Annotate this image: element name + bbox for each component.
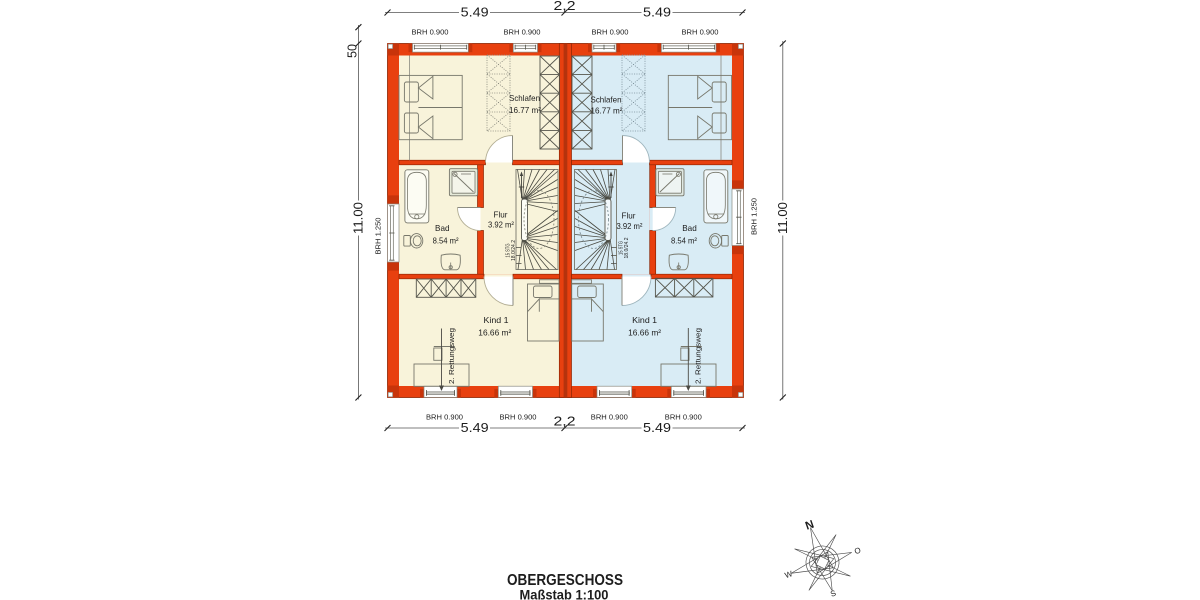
svg-text:Bad: Bad [682, 223, 697, 233]
svg-text:5.49: 5.49 [643, 6, 671, 20]
svg-text:BRH 0.900: BRH 0.900 [682, 28, 719, 37]
svg-text:Maßstab 1:100: Maßstab 1:100 [520, 588, 609, 600]
svg-text:BRH 0.900: BRH 0.900 [591, 413, 628, 422]
svg-text:5.49: 5.49 [461, 421, 489, 435]
svg-text:BRH 0.900: BRH 0.900 [665, 413, 702, 422]
svg-text:BRH 1.250: BRH 1.250 [750, 198, 759, 235]
svg-text:BRH 0.900: BRH 0.900 [426, 413, 463, 422]
svg-text:OBERGESCHOSS: OBERGESCHOSS [507, 572, 623, 589]
svg-text:Flur: Flur [494, 210, 508, 220]
svg-text:BRH 0.900: BRH 0.900 [412, 28, 449, 37]
svg-text:5.49: 5.49 [461, 6, 489, 20]
svg-text:8.54 m²: 8.54 m² [671, 236, 697, 246]
svg-text:16.77 m²: 16.77 m² [591, 106, 623, 116]
svg-text:16.77 m²: 16.77 m² [509, 105, 541, 115]
svg-text:11.00: 11.00 [352, 202, 366, 234]
svg-text:Schlafen: Schlafen [509, 93, 540, 103]
svg-text:2,2: 2,2 [554, 0, 576, 13]
svg-text:2,2: 2,2 [554, 415, 576, 429]
svg-text:Flur: Flur [622, 211, 636, 221]
svg-text:2. Rettungsweg: 2. Rettungsweg [449, 328, 456, 384]
svg-text:16.66 m²: 16.66 m² [478, 327, 511, 337]
svg-text:Schlafen: Schlafen [591, 95, 622, 105]
svg-text:3.92 m²: 3.92 m² [617, 221, 643, 231]
svg-text:BRH 0.900: BRH 0.900 [592, 28, 629, 37]
svg-text:8.54 m²: 8.54 m² [433, 236, 459, 246]
svg-text:BRH 0.900: BRH 0.900 [500, 413, 537, 422]
svg-text:18.0/24.2: 18.0/24.2 [511, 240, 517, 261]
svg-text:2. Rettungsweg: 2. Rettungsweg [696, 328, 703, 384]
svg-text:3.92 m²: 3.92 m² [488, 220, 514, 230]
svg-text:18.0/24.2: 18.0/24.2 [624, 238, 630, 259]
svg-text:16.66 m²: 16.66 m² [628, 327, 661, 337]
svg-text:BRH 0.900: BRH 0.900 [504, 28, 541, 37]
svg-text:Bad: Bad [435, 223, 450, 233]
svg-text:5.49: 5.49 [643, 421, 671, 435]
svg-text:Kind 1: Kind 1 [632, 315, 657, 325]
svg-text:Kind 1: Kind 1 [484, 315, 509, 325]
svg-text:BRH 1.250: BRH 1.250 [374, 218, 383, 255]
svg-text:50: 50 [346, 44, 360, 58]
svg-text:11.00: 11.00 [776, 202, 790, 234]
